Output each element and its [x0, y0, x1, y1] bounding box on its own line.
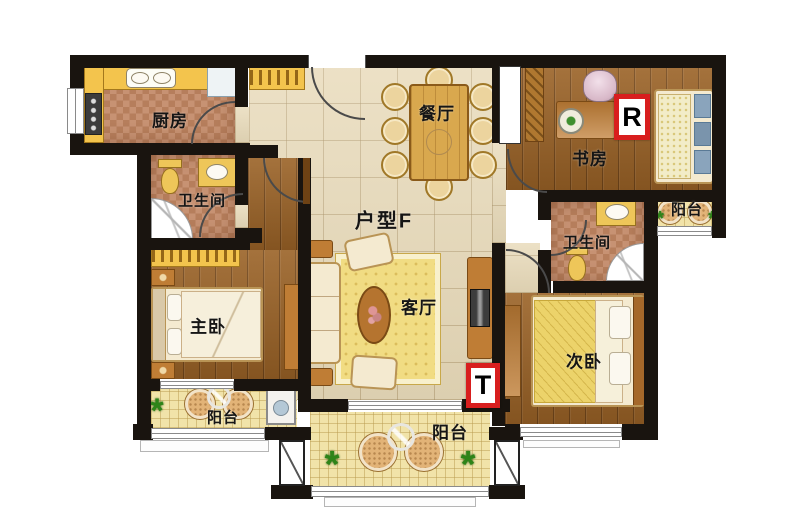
room-label-balcony-bottom: 阳台 [432, 419, 468, 444]
wall-block-washer [265, 427, 311, 440]
living-coffee-table [357, 286, 391, 344]
study-daybed [654, 89, 714, 184]
tv-screen [470, 289, 490, 327]
wall-block-bwin-right-top [489, 427, 523, 440]
living-balcony-door [348, 401, 462, 410]
wall-block-bwin-right-bottom [489, 485, 525, 499]
room-label-balcony-right: 阳台 [671, 199, 703, 220]
daybed-cushion [694, 94, 711, 118]
study-vase [583, 70, 617, 102]
entry-closet [249, 66, 305, 90]
balcony-left-window [151, 428, 265, 439]
wall-block-bwin-left-bottom [271, 485, 313, 499]
master-balcony-door [160, 381, 234, 389]
kitchen-stove [85, 93, 102, 135]
kitchen-window [67, 88, 84, 134]
unit-label: 户型F [355, 205, 413, 234]
dining-chair [381, 151, 409, 179]
dining-chair [381, 83, 409, 111]
casement-window-right [494, 440, 520, 486]
bath1-sink [206, 164, 228, 180]
balcony-bottom-window [311, 486, 489, 497]
living-side-table [309, 368, 333, 386]
kitchen-sink [126, 68, 176, 88]
room-label-balcony-left: 阳台 [207, 407, 239, 428]
balcony-bottom-table [387, 423, 415, 451]
window-sill [140, 440, 269, 452]
study-chair [558, 108, 584, 134]
wall-right-outer [712, 55, 726, 238]
room-label-master-bedroom: 主卧 [190, 313, 226, 338]
wall-top-right [366, 55, 725, 68]
daybed-mattress [658, 94, 691, 179]
window-sill [324, 497, 476, 507]
bath2-sink [605, 204, 629, 220]
balcony-right-window [657, 226, 712, 236]
sink-basin [153, 72, 171, 84]
wall-bath1-bottom [137, 238, 250, 250]
room-label-bathroom-right: 卫生间 [563, 232, 611, 253]
wall-block-balcony-left [133, 424, 153, 440]
wall-bath2-left-upper [538, 202, 551, 220]
master-pillow [167, 294, 182, 321]
wall-top-left [70, 55, 308, 68]
wall-master-bottom-right [234, 379, 311, 391]
floorplan-canvas: * * * * * [0, 0, 791, 512]
dining-centerpiece [426, 129, 452, 155]
marker-T[interactable]: T [466, 363, 500, 408]
bath1-vanity [198, 158, 236, 187]
bedroom2-dresser [504, 305, 521, 397]
wall-nook-top [248, 145, 278, 158]
living-armchair [350, 354, 398, 390]
master-bench [284, 284, 299, 370]
bath2-vanity [596, 198, 636, 226]
wall-bedroom2-right [644, 202, 658, 440]
plant-icon: * [320, 455, 344, 479]
wall-kitchen-bottom [70, 143, 250, 155]
bedroom2-pillow [609, 352, 631, 385]
dining-chair [381, 117, 409, 145]
bedroom2-window [520, 427, 622, 437]
master-pillow [167, 328, 182, 355]
room-label-dining: 餐厅 [419, 100, 455, 125]
living-side-table [309, 240, 333, 258]
daybed-cushion [694, 150, 711, 174]
marker-R[interactable]: R [614, 94, 650, 140]
master-nightstand [151, 269, 175, 286]
room-label-living-room: 客厅 [401, 294, 437, 319]
floor-patch-kitchen-door [235, 107, 249, 143]
study-shelf [525, 66, 544, 142]
washer-door [273, 400, 289, 416]
master-door-leaf [303, 158, 310, 204]
bath1-toilet-tank [158, 159, 182, 168]
casement-window-left [279, 440, 305, 486]
bedroom2-pillow [609, 306, 631, 339]
bath2-toilet-bowl [568, 255, 586, 281]
wall-bedroom2-bottom-right [622, 424, 658, 440]
wall-living-bottom-left [298, 399, 348, 412]
kitchen-fridge [207, 64, 237, 97]
plant-icon: * [456, 455, 480, 479]
bath1-toilet-bowl [161, 168, 179, 194]
room-label-second-bedroom: 次卧 [566, 348, 602, 373]
master-nightstand [151, 362, 175, 379]
study-door-leaf [499, 66, 521, 144]
room-label-study: 书房 [572, 145, 608, 170]
master-headboard [153, 289, 166, 360]
washing-machine [266, 389, 296, 425]
window-sill [523, 440, 620, 448]
wall-bath2-bottom [553, 281, 658, 293]
daybed-cushion [694, 122, 711, 146]
dining-chair [469, 151, 497, 179]
sink-basin [131, 72, 149, 84]
room-label-bathroom-left: 卫生间 [178, 190, 226, 211]
wall-kitchen-right [235, 55, 248, 107]
wall-master-bottom-left [137, 379, 160, 391]
room-label-kitchen: 厨房 [152, 107, 188, 132]
